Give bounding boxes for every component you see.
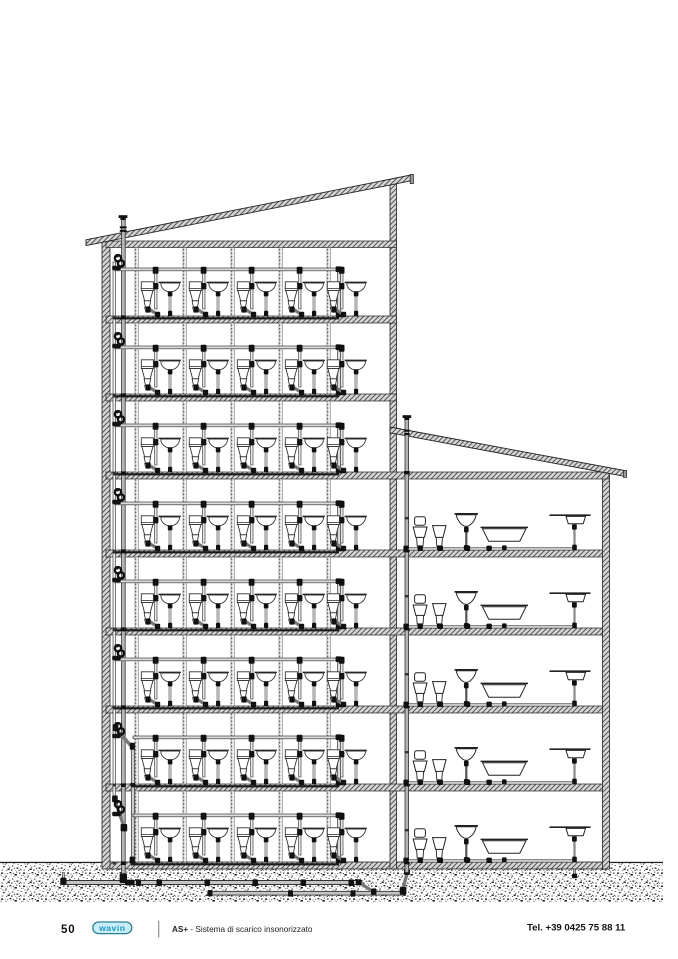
svg-text:wavin: wavin	[98, 923, 125, 933]
svg-text:50: 50	[61, 924, 76, 936]
svg-text:AS+ - Sistema di scarico inson: AS+ - Sistema di scarico insonorizzato	[172, 925, 313, 934]
svg-text:Tel. +39 0425 75 88 11: Tel. +39 0425 75 88 11	[527, 923, 626, 934]
